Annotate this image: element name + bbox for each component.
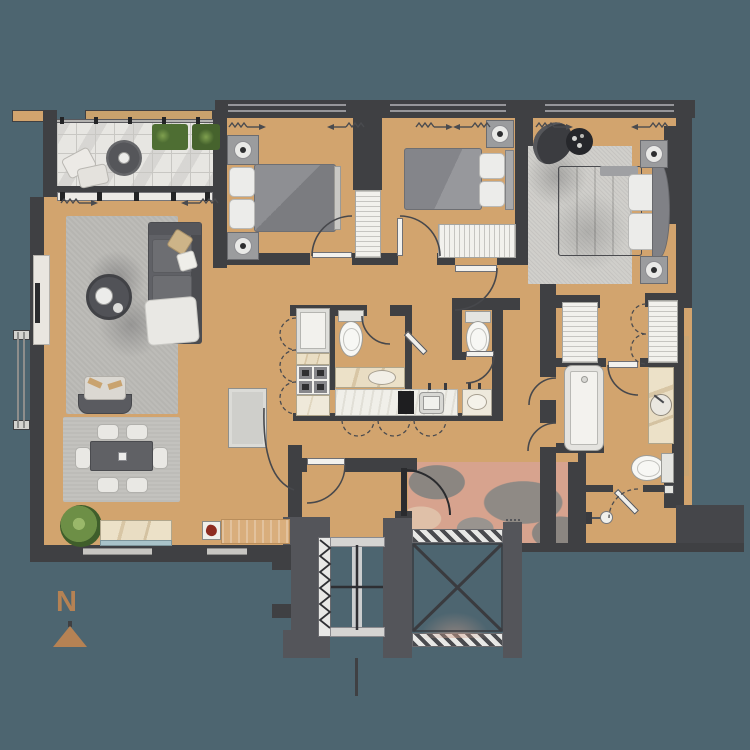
- annotations-layer: [0, 0, 750, 750]
- door-arc-bath2: [362, 316, 390, 344]
- curtain-icon: [61, 199, 98, 206]
- door-arc-entry: [405, 470, 450, 515]
- curtain-icon: [181, 199, 218, 206]
- curtain-icon: [416, 123, 453, 130]
- curtain-icon: [229, 123, 266, 130]
- door-arc-master: [455, 268, 497, 310]
- curtain-icon: [453, 123, 490, 130]
- curtain-icon: [536, 123, 573, 130]
- curtain-icon: [631, 123, 668, 130]
- elevator2-x-cross: [413, 544, 502, 631]
- door-arc-corridor: [307, 465, 345, 503]
- elevator1-grid: [331, 545, 383, 630]
- north-label: N: [56, 586, 78, 619]
- curtain-icon: [327, 123, 364, 130]
- door-arc-wc3: [466, 355, 494, 383]
- north-arrow-icon: [53, 626, 87, 647]
- door-arc-bed2: [312, 216, 352, 256]
- folding-doors: [280, 304, 646, 518]
- door-arc-hall2: [528, 423, 556, 451]
- door-arc-dining: [264, 408, 294, 490]
- door-arc-hall1: [529, 378, 556, 405]
- door-arcs: [264, 216, 638, 503]
- door-arc-masterbath: [608, 365, 638, 395]
- door-arc-bed3: [400, 216, 440, 256]
- floor-plan: N: [0, 0, 750, 750]
- elevator1-zigzag: [320, 540, 330, 628]
